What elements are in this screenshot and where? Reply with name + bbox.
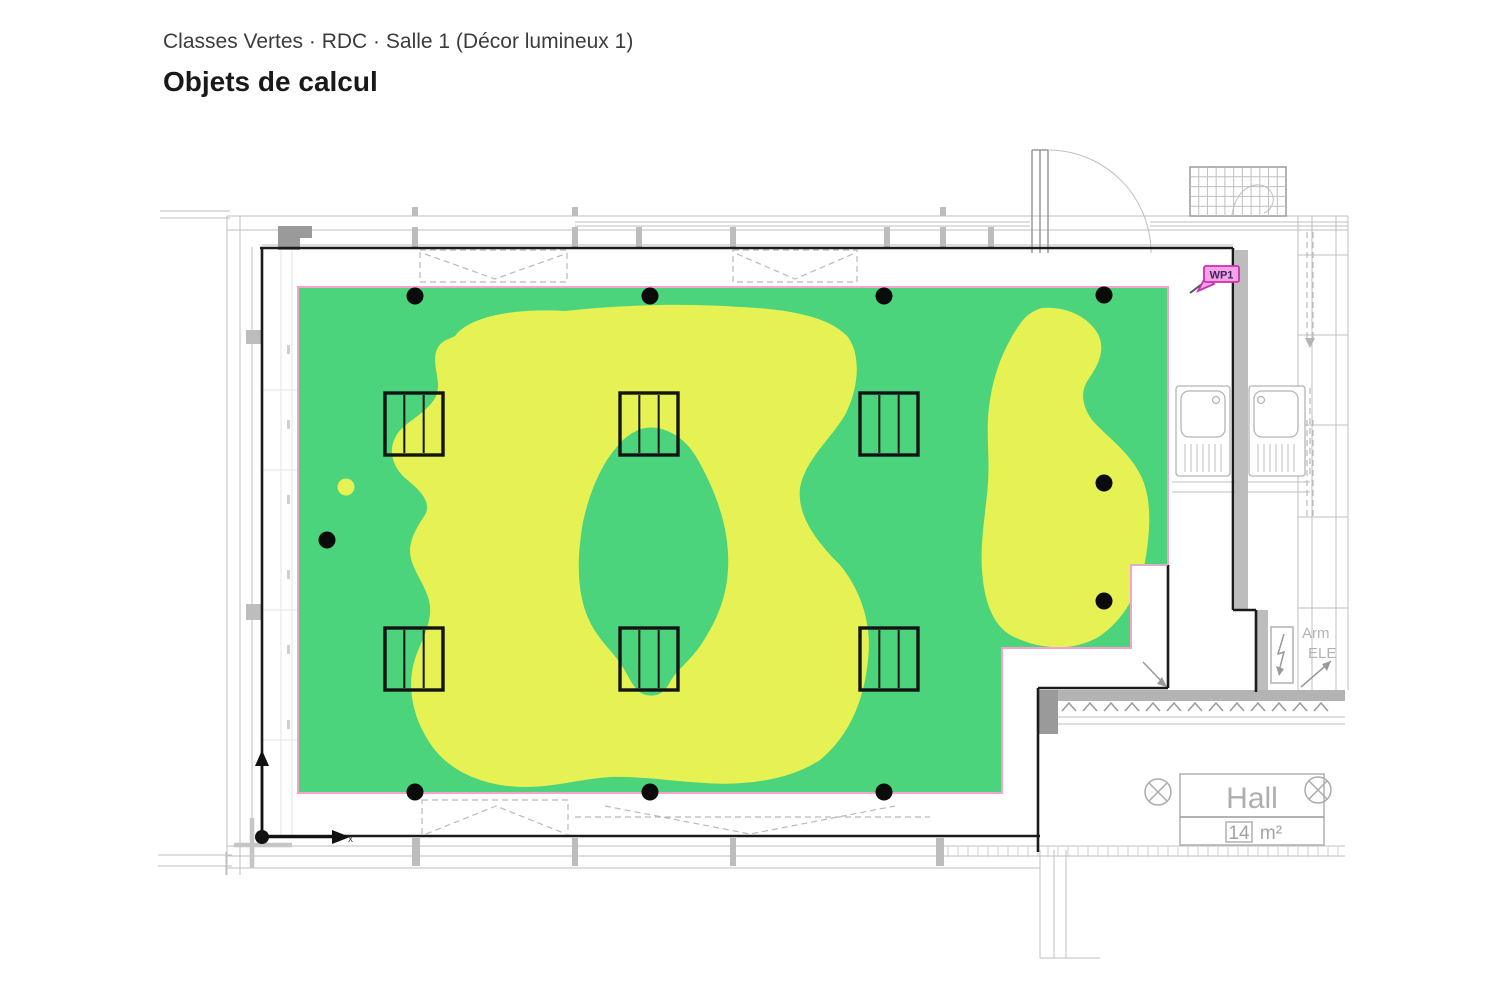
wall-tick [287,345,290,354]
elec-cabinet-box [1271,627,1293,683]
hall-room-name: Hall [1226,782,1278,815]
wall-band-horizontal [1045,690,1345,701]
tooth-mark [1146,703,1160,711]
wall-tick [287,645,290,654]
window-symbol-lines [575,806,930,834]
pipe-arrow [1305,338,1315,348]
door-swing-arc [1048,150,1151,253]
elec-cabinet: Arm ELE [1271,625,1336,683]
corner-block [278,226,312,250]
tooth-mark [1083,703,1097,711]
isolux-contour-spot [338,479,355,496]
wall-mullion [940,207,946,216]
window-symbol-frame [422,800,568,836]
window-symbol-vee [425,254,565,279]
wall-tick [287,570,290,579]
calc-point-dot[interactable] [319,532,336,549]
door-frame [1032,150,1048,253]
shaft-grid-border [1190,167,1286,216]
calc-point-dot[interactable] [642,784,659,801]
shaft-grid [1190,167,1286,216]
calc-point-dot[interactable] [407,288,424,305]
wall-mullion [572,227,578,248]
insulation-teeth [1062,703,1328,711]
window-symbol-vee [737,254,853,279]
wall-corner-block [1038,690,1058,734]
calc-point-dot[interactable] [876,288,893,305]
calc-point-dot[interactable] [407,784,424,801]
tooth-mark [1293,703,1307,711]
wall-mullion [940,227,946,248]
tooth-mark [1125,703,1139,711]
wall-mullion [988,227,994,248]
axis-y-arrowhead [255,750,269,766]
calc-point-dot[interactable] [1096,475,1113,492]
shaft-grid-lines [1190,167,1286,216]
calc-point-dot[interactable] [642,288,659,305]
wp1-label: WP1 [1210,270,1234,282]
wall-band [1256,610,1268,690]
wall-mullion [730,227,736,248]
wall-mullion [572,838,578,866]
door-top-right [1032,150,1151,253]
window-symbol-vee [426,806,566,834]
wall-sill-block [246,604,262,620]
wall-mullion [572,207,578,216]
wall-lines-faint [262,250,298,835]
isolux-contours [338,305,1150,787]
calc-point-dot[interactable] [876,784,893,801]
tooth-mark [1251,703,1265,711]
wall-mullion [730,838,736,866]
calc-point-dot[interactable] [1096,287,1113,304]
tooth-mark [1230,703,1244,711]
wall-mullion [412,227,418,248]
tooth-mark [1188,703,1202,711]
wall-band [1235,250,1248,610]
wall-tick [287,495,290,504]
window-symbol-frame [420,250,567,282]
wall-tick [287,720,290,729]
tooth-mark [1209,703,1223,711]
app-canvas: Classes Vertes · RDC · Salle 1 (Décor lu… [0,0,1500,1000]
diagonal-arrowhead [1322,661,1331,671]
axis-x-label: x [348,834,353,845]
wall-tick [287,420,290,429]
wall-mullion [884,227,890,248]
elec-cabinet-label-line1: Arm [1302,625,1330,642]
lamp-symbol [1145,779,1171,805]
tooth-mark [1104,703,1118,711]
origin-point [255,830,269,844]
wall-mullion [412,207,418,216]
wall-mullion [636,227,642,248]
tooth-mark [1314,703,1328,711]
shaft-arc [1232,185,1273,215]
window-symbol-frame [733,250,857,282]
door-leaf-diagonal [1143,661,1331,687]
wp1-tag[interactable]: WP1 [1190,266,1239,293]
sink-right-drain [1258,397,1265,404]
sink-left-drain [1213,397,1220,404]
tooth-mark [1062,703,1076,711]
calc-point-dot[interactable] [1096,593,1113,610]
hall-label: Hall 14 m² [1145,774,1331,845]
wall-mullion [936,838,944,866]
tooth-mark [1272,703,1286,711]
wall-sill-block [246,330,262,344]
hall-area-unit: m² [1260,823,1282,844]
tooth-mark [1167,703,1181,711]
wall-mullion [412,838,420,866]
hall-area-value: 14 [1228,823,1250,844]
floor-plan: Arm ELE Hall 14 m² WP1 [0,0,1500,1000]
elec-cabinet-label-line2: ELE [1308,645,1336,662]
